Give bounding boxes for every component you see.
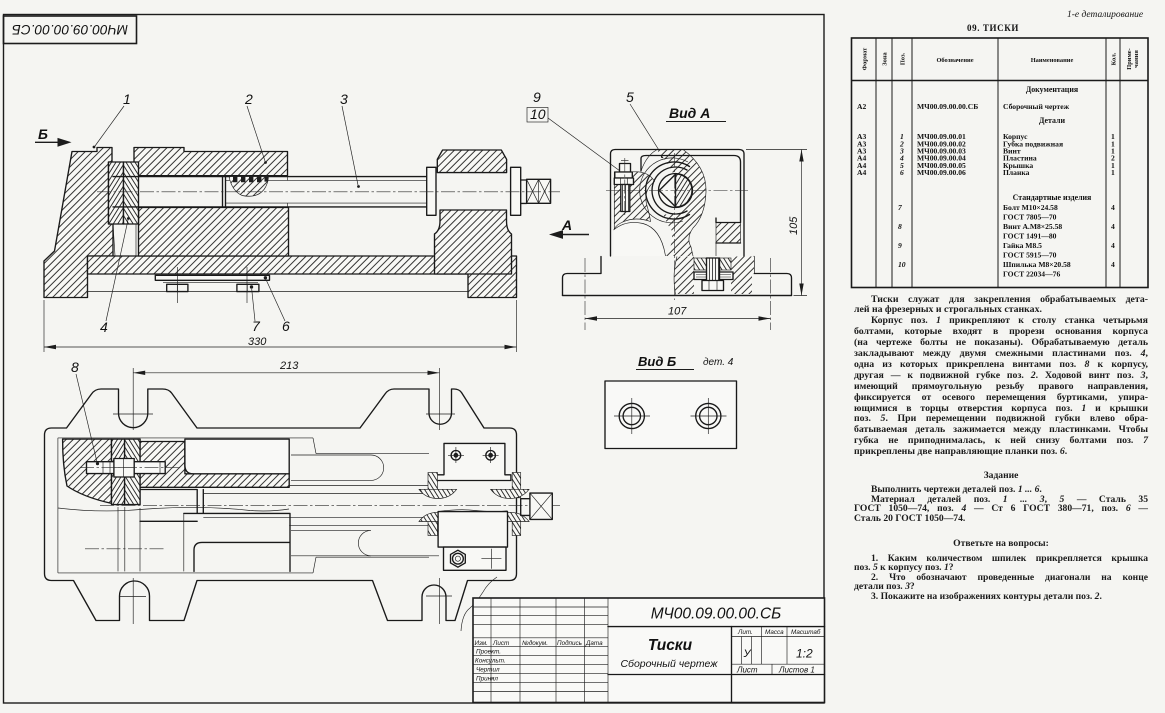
svg-text:5: 5 xyxy=(626,89,634,105)
svg-text:А2: А2 xyxy=(857,102,866,111)
svg-text:10: 10 xyxy=(898,260,906,269)
svg-text:У: У xyxy=(743,648,752,660)
svg-text:Дата: Дата xyxy=(585,640,603,647)
svg-text:Поз.: Поз. xyxy=(900,52,907,65)
svg-text:Кол.: Кол. xyxy=(1111,52,1118,65)
svg-text:МЧ00.09.00.00.СБ: МЧ00.09.00.00.СБ xyxy=(12,22,128,37)
svg-text:Болт М10×24.58: Болт М10×24.58 xyxy=(1003,203,1058,212)
svg-text:1: 1 xyxy=(1111,168,1115,177)
svg-text:Планка: Планка xyxy=(1003,168,1030,177)
svg-text:Листов 1: Листов 1 xyxy=(778,666,815,675)
svg-text:Изм.: Изм. xyxy=(475,640,488,647)
svg-text:дет. 4: дет. 4 xyxy=(703,357,734,368)
svg-text:Стандартные изделия: Стандартные изделия xyxy=(1013,193,1092,202)
svg-text:330: 330 xyxy=(248,336,267,348)
svg-text:Тиски: Тиски xyxy=(648,637,693,654)
svg-text:107: 107 xyxy=(668,306,687,318)
svg-text:ГОСТ 22034—76: ГОСТ 22034—76 xyxy=(1003,270,1060,279)
svg-text:Приме-: Приме- xyxy=(1126,48,1133,70)
svg-text:Сборочный чертеж: Сборочный чертеж xyxy=(620,658,718,670)
svg-text:105: 105 xyxy=(788,216,800,235)
svg-text:1:2: 1:2 xyxy=(796,647,813,661)
svg-text:4: 4 xyxy=(1111,241,1115,250)
svg-text:чания: чания xyxy=(1133,50,1140,68)
svg-text:Лист: Лист xyxy=(736,666,758,675)
svg-text:А4: А4 xyxy=(857,168,866,177)
svg-text:Винт А.М8×25.58: Винт А.М8×25.58 xyxy=(1003,222,1062,231)
svg-text:Лист: Лист xyxy=(492,640,509,647)
svg-text:Шпилька М8×20.58: Шпилька М8×20.58 xyxy=(1003,260,1071,269)
svg-text:9: 9 xyxy=(533,89,541,105)
svg-text:№докум.: №докум. xyxy=(522,639,548,647)
svg-text:Лит.: Лит. xyxy=(737,629,753,636)
svg-text:6: 6 xyxy=(900,168,904,177)
svg-text:Сборочный чертеж: Сборочный чертеж xyxy=(1003,102,1070,111)
svg-text:МЧ00.09.00.06: МЧ00.09.00.06 xyxy=(917,168,966,177)
svg-text:Чертил: Чертил xyxy=(476,666,500,673)
svg-text:4: 4 xyxy=(1111,260,1115,269)
svg-text:4: 4 xyxy=(1111,203,1115,212)
svg-text:ГОСТ 1491—80: ГОСТ 1491—80 xyxy=(1003,232,1057,241)
svg-text:Наименование: Наименование xyxy=(1031,57,1074,64)
svg-text:7: 7 xyxy=(252,318,261,334)
svg-text:8: 8 xyxy=(71,359,79,375)
svg-text:ГОСТ 7805—70: ГОСТ 7805—70 xyxy=(1003,213,1057,222)
svg-text:Масштаб: Масштаб xyxy=(791,628,821,636)
svg-text:4: 4 xyxy=(100,319,108,335)
svg-text:2: 2 xyxy=(244,91,253,107)
svg-text:9: 9 xyxy=(898,241,902,250)
svg-text:Консульт.: Консульт. xyxy=(475,658,506,665)
svg-text:Масса: Масса xyxy=(765,629,784,636)
svg-text:Вид А: Вид А xyxy=(669,105,710,121)
svg-text:Подпись: Подпись xyxy=(557,639,582,647)
svg-text:Обозначение: Обозначение xyxy=(936,57,973,64)
svg-text:10: 10 xyxy=(530,106,546,122)
svg-text:Принял: Принял xyxy=(476,675,498,682)
svg-text:Вид Б: Вид Б xyxy=(638,354,676,369)
svg-text:8: 8 xyxy=(898,222,902,231)
svg-text:МЧ00.09.00.00.СБ: МЧ00.09.00.00.СБ xyxy=(917,102,978,111)
svg-text:Формат: Формат xyxy=(862,47,869,70)
svg-text:Документация: Документация xyxy=(1026,85,1079,94)
svg-text:213: 213 xyxy=(279,360,299,372)
svg-text:Гайка М8.5: Гайка М8.5 xyxy=(1003,241,1042,250)
svg-text:Проект.: Проект. xyxy=(476,649,501,656)
svg-text:4: 4 xyxy=(1111,222,1115,231)
svg-text:МЧ00.09.00.00.СБ: МЧ00.09.00.00.СБ xyxy=(651,606,781,623)
svg-text:Зона: Зона xyxy=(882,51,889,65)
svg-text:7: 7 xyxy=(898,203,903,212)
svg-text:ГОСТ 5915—70: ГОСТ 5915—70 xyxy=(1003,251,1057,260)
svg-text:1: 1 xyxy=(123,91,131,107)
svg-text:Детали: Детали xyxy=(1039,116,1065,125)
svg-text:6: 6 xyxy=(282,318,290,334)
svg-text:3: 3 xyxy=(340,91,348,107)
svg-text:Б: Б xyxy=(38,126,48,142)
